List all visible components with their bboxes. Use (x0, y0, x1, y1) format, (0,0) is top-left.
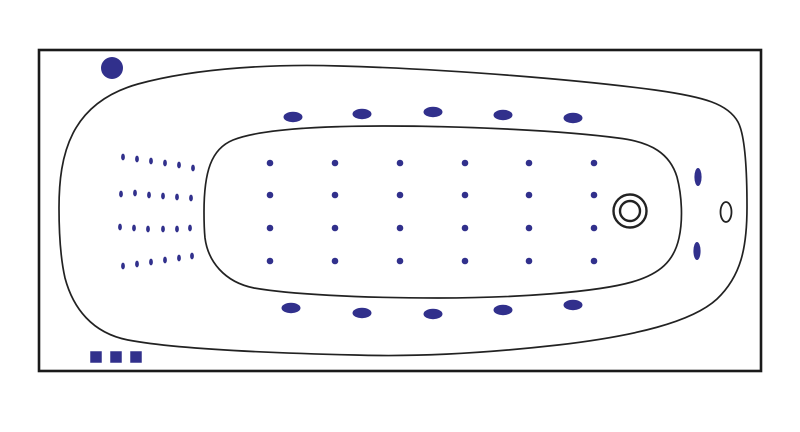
deck-jet-bottom (564, 300, 583, 310)
deck-jet-top (564, 113, 583, 123)
micro-air-jet (190, 253, 194, 260)
micro-air-jet (135, 156, 139, 163)
floor-air-jet (526, 225, 533, 232)
floor-air-jet (332, 160, 339, 167)
floor-air-jet (332, 225, 339, 232)
floor-air-jet (267, 258, 274, 265)
floor-air-jet (267, 225, 274, 232)
micro-air-jet (133, 190, 137, 197)
micro-air-jet (163, 257, 167, 264)
micro-air-jet (191, 165, 195, 172)
deck-jet-bottom (424, 309, 443, 319)
floor-air-jet (397, 160, 404, 167)
micro-air-jet (149, 158, 153, 165)
floor-air-jet (462, 225, 469, 232)
micro-air-jet (118, 224, 122, 231)
outer-frame (39, 50, 761, 371)
bathtub-diagram (0, 0, 800, 432)
micro-air-jet (163, 160, 167, 167)
deck-jet-top (284, 112, 303, 122)
micro-air-jet (188, 225, 192, 232)
micro-air-jet (135, 261, 139, 268)
deck-jet-bottom (494, 305, 513, 315)
floor-air-jet (526, 160, 533, 167)
deck-jet-top (424, 107, 443, 117)
floor-air-jet (397, 258, 404, 265)
floor-air-jet (462, 192, 469, 199)
drain-outer-ring (614, 195, 647, 228)
floor-air-jet (332, 258, 339, 265)
micro-air-jet (119, 191, 123, 198)
pump-jet-circle (101, 57, 123, 79)
floor-air-jet (526, 192, 533, 199)
micro-air-jet (147, 192, 151, 199)
floor-air-jet (591, 192, 598, 199)
control-square (110, 351, 122, 363)
floor-air-jet (267, 160, 274, 167)
basin-outline (204, 126, 681, 298)
floor-air-jet (591, 258, 598, 265)
micro-air-jet (146, 226, 150, 233)
tub-rim-outline (59, 65, 747, 355)
overflow-hole (721, 202, 732, 222)
micro-air-jet (121, 263, 125, 270)
micro-air-jet (177, 162, 181, 169)
floor-air-jet (462, 258, 469, 265)
floor-air-jet (526, 258, 533, 265)
deck-jet-top (353, 109, 372, 119)
deck-jet-top (494, 110, 513, 120)
floor-air-jet (267, 192, 274, 199)
micro-air-jet (189, 195, 193, 202)
floor-air-jet (591, 160, 598, 167)
micro-air-jet (121, 154, 125, 161)
side-jet (694, 168, 701, 186)
bathtub-svg (0, 0, 800, 432)
micro-air-jet (175, 226, 179, 233)
control-square (90, 351, 102, 363)
floor-air-jet (591, 225, 598, 232)
control-square (130, 351, 142, 363)
micro-air-jet (161, 226, 165, 233)
floor-air-jet (462, 160, 469, 167)
floor-air-jet (397, 225, 404, 232)
floor-air-jet (397, 192, 404, 199)
micro-air-jet (149, 259, 153, 266)
side-jet (693, 242, 700, 260)
floor-air-jet (332, 192, 339, 199)
deck-jet-bottom (282, 303, 301, 313)
micro-air-jet (175, 194, 179, 201)
micro-air-jet (161, 193, 165, 200)
deck-jet-bottom (353, 308, 372, 318)
micro-air-jet (132, 225, 136, 232)
micro-air-jet (177, 255, 181, 262)
drain-inner-ring (620, 201, 640, 221)
